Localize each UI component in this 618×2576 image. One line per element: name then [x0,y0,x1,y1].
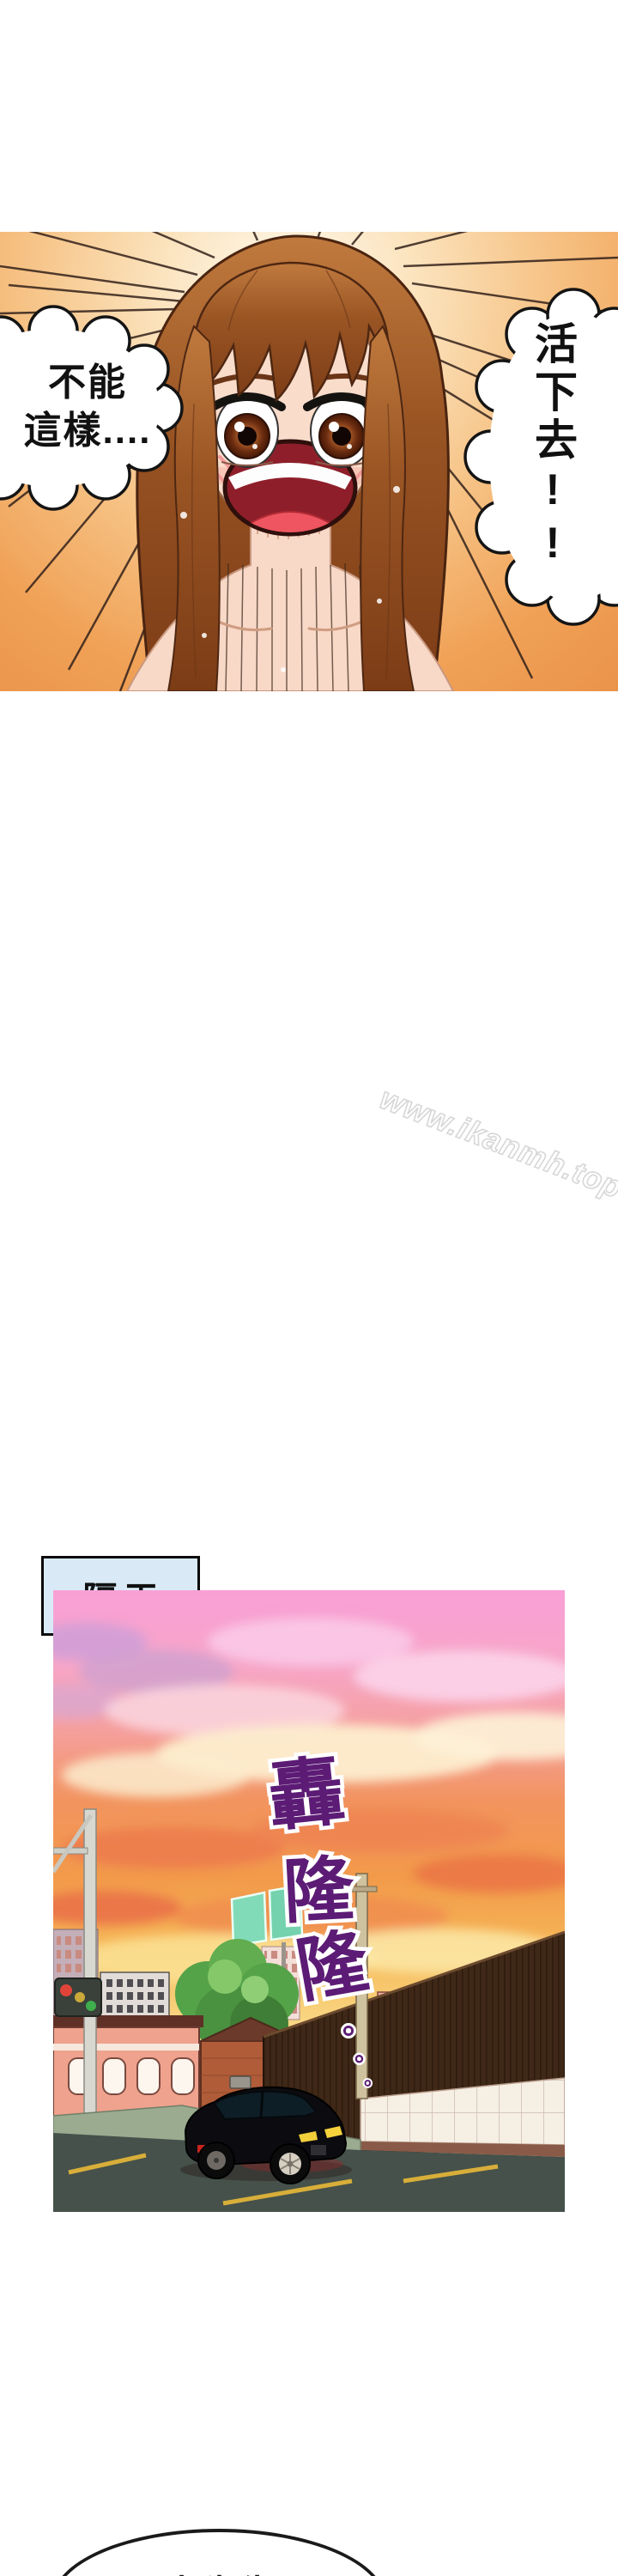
speech-text-left: 不能 這樣.... [2,359,173,456]
license-plate [311,2145,326,2155]
speech-text-left-line2: 這樣.... [2,407,173,455]
bottom-speech-bubble: 王大先生... [51,2529,386,2576]
roof-marker [230,2076,251,2088]
speech-text-right: 活下去!! [522,321,584,605]
bottom-speech-text: 王大先生... [55,2565,383,2576]
sfx-char-1: 轟 [264,1748,348,1841]
panel-shout-scene: 不能 這樣.... 活下去!! [0,232,618,691]
sfx-dot-3: 。 [364,2068,383,2089]
sfx-char-2: 隆 [282,1850,357,1932]
speech-text-left-line1: 不能 [2,359,173,407]
traffic-light [55,1978,101,2016]
character-woman [127,236,453,691]
sfx-dot-2: 。 [354,2039,379,2066]
comic-page: 不能 這樣.... 活下去!! www.ikanmh.top 隔天 [0,0,618,2576]
panel-sunset-street: 轟 隆 隆 。 。 。 [53,1590,565,2212]
sunset-street-art: 轟 隆 隆 。 。 。 [53,1590,565,2212]
wheel-front [270,2144,310,2184]
site-watermark: www.ikanmh.top [375,1080,618,1206]
wheel-rear [198,2142,234,2178]
sfx-dot-1: 。 [342,2005,373,2040]
sfx-char-3: 隆 [291,1922,375,2011]
